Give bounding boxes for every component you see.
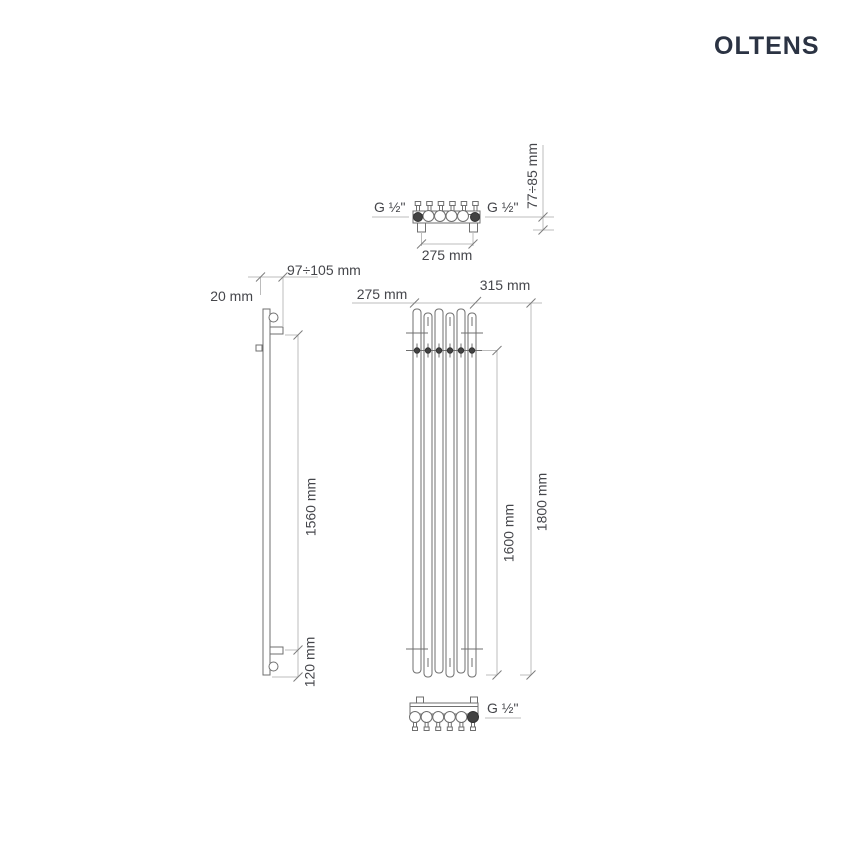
- side-view-vertical-dimensions: 1560 mm 120 mm: [272, 331, 319, 688]
- top-view: G ½" G ½" 275 mm 77÷85 mm: [372, 143, 554, 263]
- front-view-height-label: 1800 mm: [534, 473, 550, 531]
- front-view-connection-span-label: 1600 mm: [501, 504, 517, 562]
- side-view-wall-hook: [256, 345, 262, 351]
- side-view-bottom-bracket: [270, 647, 283, 654]
- bottom-view-collector-bar: [410, 703, 478, 714]
- front-view: 275 mm 315 mm 1600 mm 1800 mm: [352, 277, 550, 680]
- top-view-pitch-dimension: 275 mm: [417, 232, 478, 263]
- side-view-bottom-offset-label: 120 mm: [302, 637, 318, 688]
- top-view-connection-right: [471, 213, 480, 222]
- side-view-top-bracket: [270, 327, 283, 334]
- top-view-wall-distance-dimension: 77÷85 mm: [524, 143, 554, 235]
- side-view-bottom-valve: [269, 662, 278, 671]
- top-view-valve-stems: [415, 202, 478, 212]
- top-view-wall-distance-label: 77÷85 mm: [524, 143, 540, 209]
- bottom-view-connection: [468, 712, 479, 723]
- top-view-g-left-label: G ½": [374, 199, 405, 215]
- bottom-view: G ½": [410, 697, 522, 731]
- front-view-height-dimension: 1800 mm: [520, 299, 550, 680]
- front-view-tubes: [413, 309, 476, 677]
- side-view-top-valve: [269, 313, 278, 322]
- side-view-depth-dimension: 20 mm 97÷105 mm: [210, 262, 361, 327]
- page: OLTENS: [0, 0, 860, 860]
- technical-drawing: G ½" G ½" 275 mm 77÷85 mm: [0, 0, 860, 860]
- front-view-width-dimensions: 275 mm 315 mm: [352, 277, 542, 309]
- bottom-view-bracket-left: [417, 697, 424, 703]
- side-view: 20 mm 97÷105 mm 1560 mm 120 mm: [210, 262, 361, 687]
- top-view-bracket-left: [418, 223, 426, 232]
- bottom-view-g-label: G ½": [487, 700, 518, 716]
- top-view-g-right-label: G ½": [487, 199, 518, 215]
- front-view-connection-span-dimension: 1600 mm: [482, 346, 517, 680]
- side-view-depth-label: 20 mm: [210, 288, 253, 304]
- top-view-pitch-label: 275 mm: [422, 247, 473, 263]
- side-view-mount-depth-label: 97÷105 mm: [287, 262, 361, 278]
- front-view-width-label: 315 mm: [480, 277, 531, 293]
- top-view-bracket-right: [470, 223, 478, 232]
- top-view-connection-left: [414, 213, 423, 222]
- bottom-view-bracket-right: [471, 697, 478, 703]
- side-view-bracket-span-label: 1560 mm: [303, 478, 319, 536]
- side-view-profile: [263, 309, 270, 675]
- front-view-pitch-label: 275 mm: [357, 286, 408, 302]
